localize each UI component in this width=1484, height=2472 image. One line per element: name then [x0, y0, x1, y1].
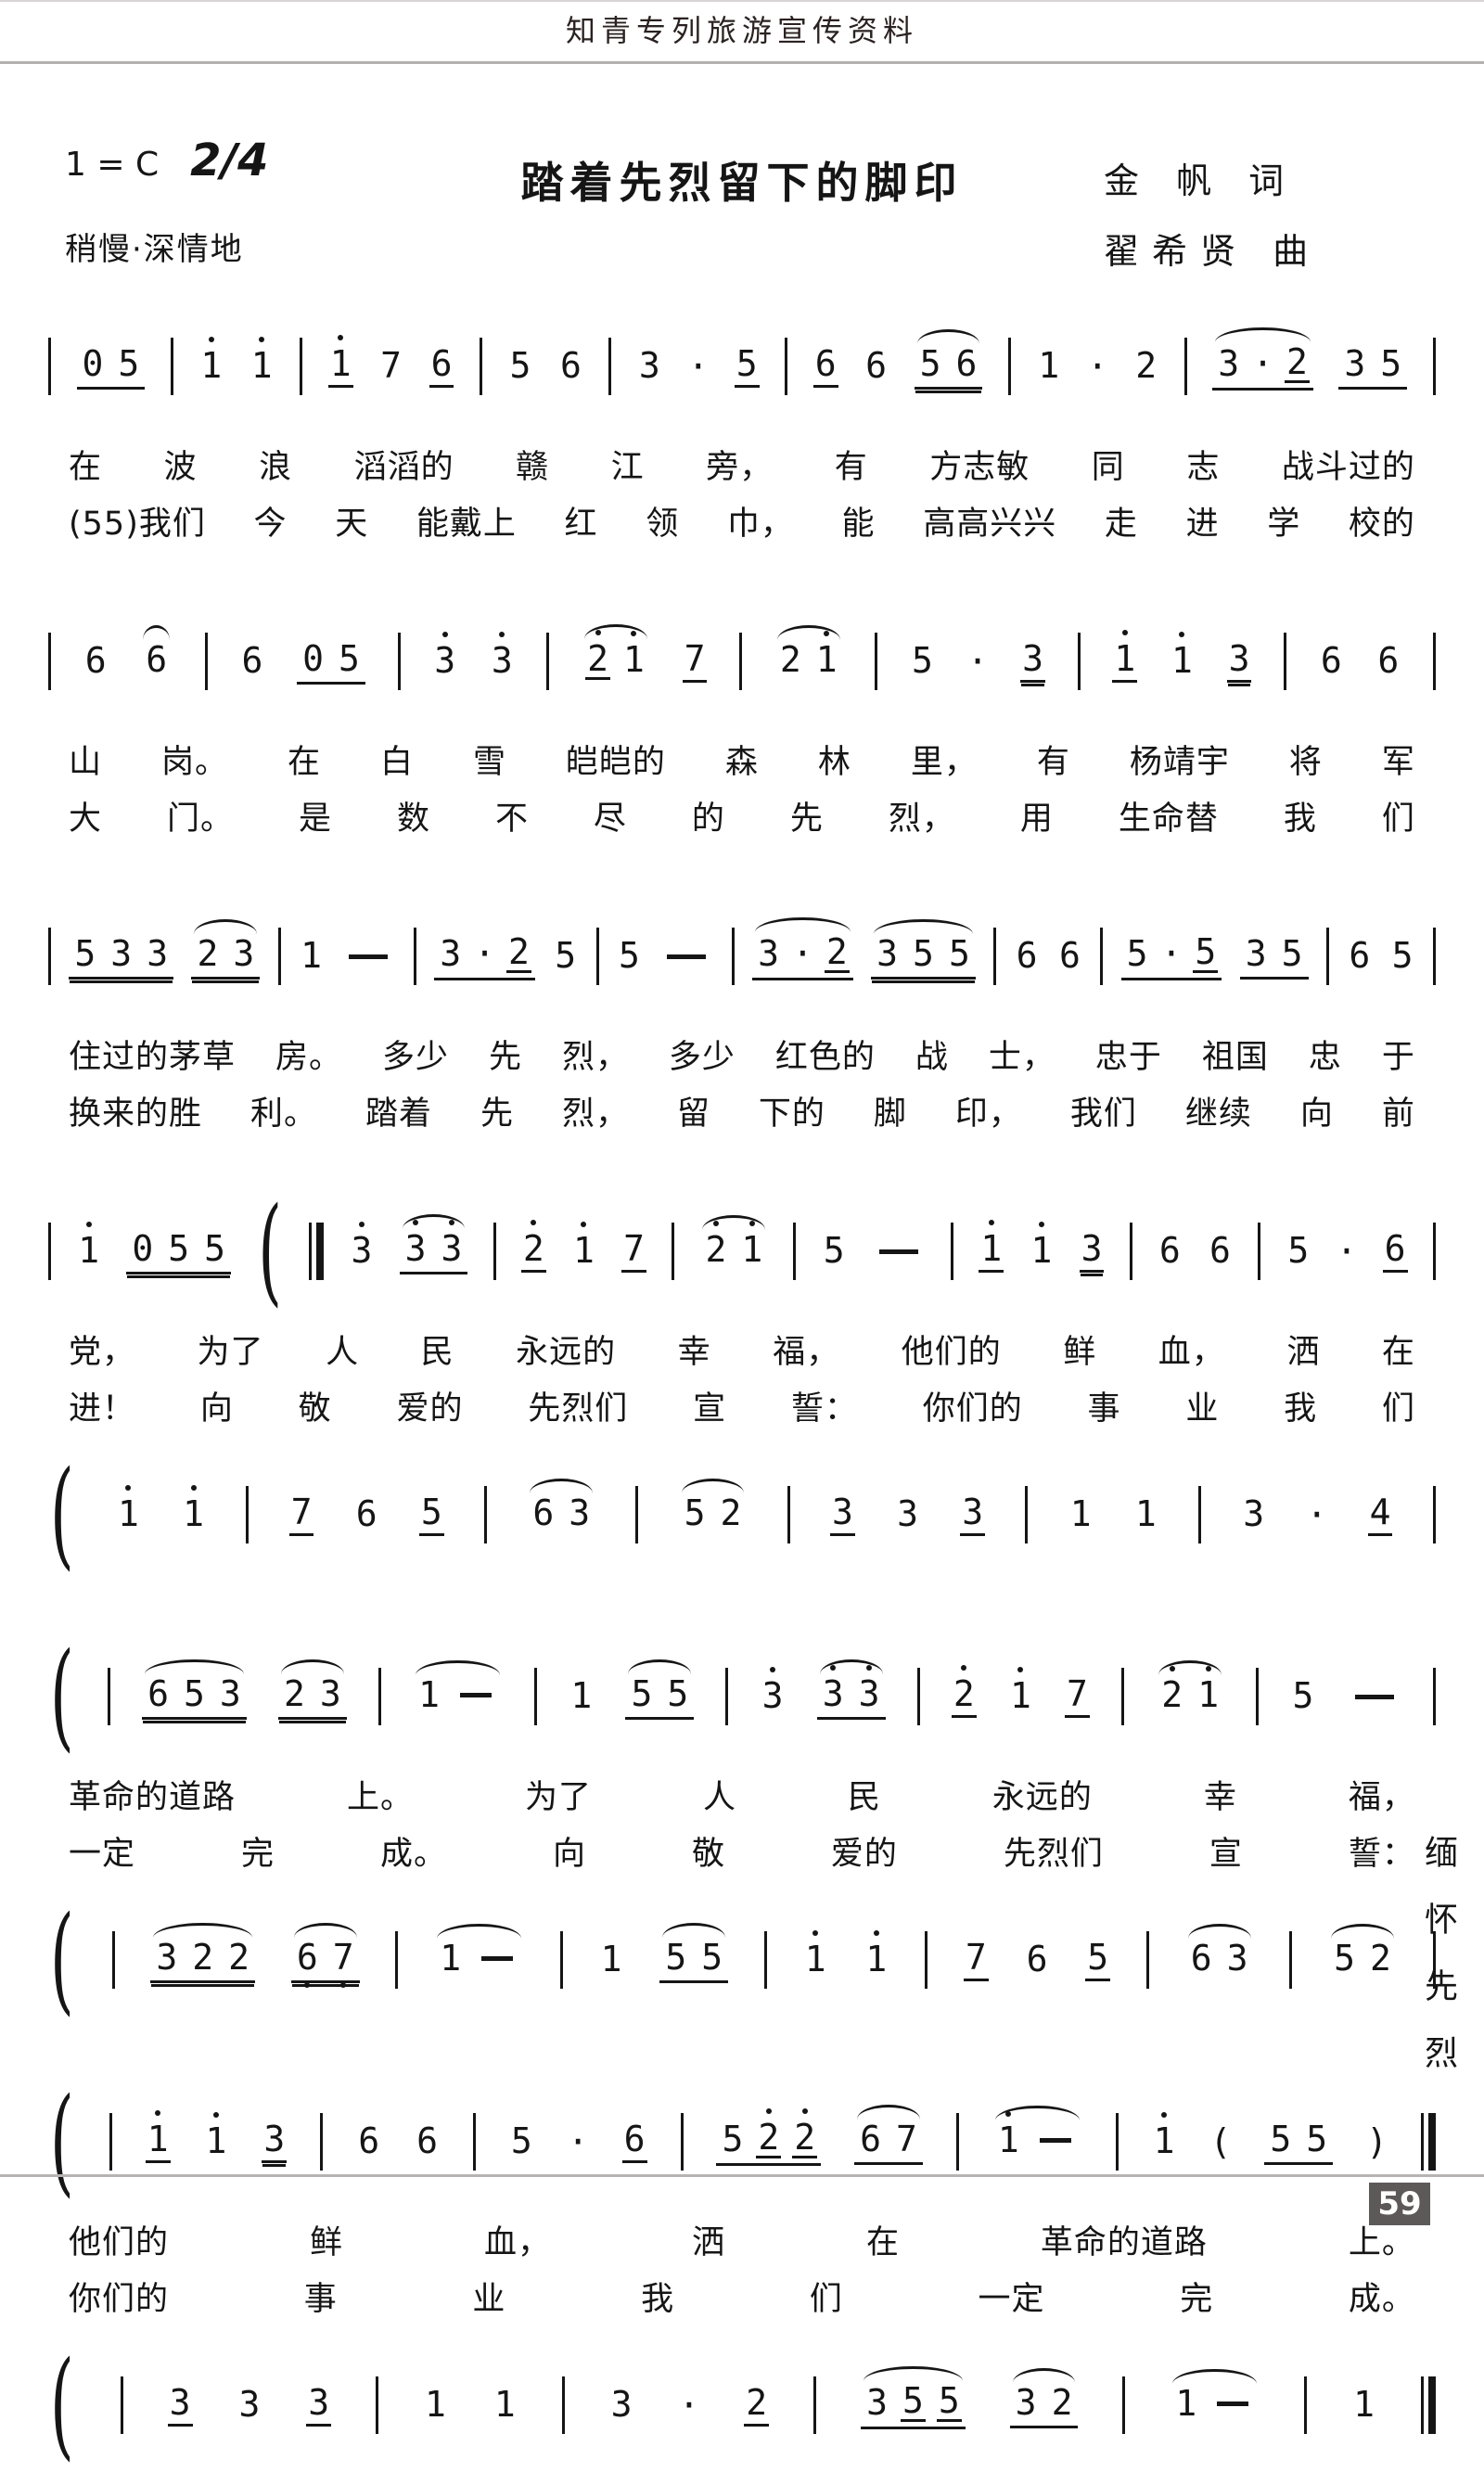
notation-row: 6660533217215·311366	[45, 591, 1439, 726]
note: 6	[1347, 937, 1372, 977]
note-group: 6	[140, 640, 173, 683]
note: 1	[328, 345, 353, 388]
note: 3	[349, 1232, 374, 1272]
note: 2	[1159, 1676, 1184, 1713]
note: 6	[1025, 1940, 1050, 1980]
notation-row: 0511176563·566561·23·235	[45, 296, 1439, 431]
lyric-word: 我	[641, 2273, 674, 2320]
note: 3	[857, 1675, 882, 1712]
lyric-word: 能戴上	[416, 497, 517, 544]
barline	[395, 1931, 398, 1989]
note: 5	[901, 2382, 926, 2422]
lyric-word: 民	[848, 1771, 881, 1818]
note: 1	[569, 1677, 594, 1717]
note: 1	[423, 2386, 448, 2426]
octave-dot-above	[86, 1222, 92, 1227]
lyric-word: 宣	[693, 1382, 726, 1429]
barline	[1289, 1931, 1292, 1989]
lyric-word: 江	[611, 441, 645, 488]
lyric-word: 幸	[1204, 1771, 1237, 1818]
note-group: 533	[69, 934, 173, 980]
note-group: 55	[659, 1938, 728, 1983]
lyric-word: 红色的	[775, 1031, 876, 1078]
barline	[534, 1668, 537, 1725]
note-group: 05	[297, 639, 365, 685]
note: 5	[937, 2382, 962, 2422]
lyric-word: 岗。	[161, 736, 228, 783]
barline	[925, 1931, 927, 1989]
notation-char: ·	[1161, 936, 1183, 971]
barline	[414, 928, 416, 985]
notation-char: ·	[1252, 346, 1273, 381]
note: 6	[1158, 1232, 1183, 1272]
lyric-word: 血，	[1158, 1326, 1225, 1373]
note-group: 33	[400, 1229, 468, 1274]
note-group: 52	[679, 1493, 748, 1536]
lyric-word: 幸	[678, 1326, 711, 1373]
lyric-word: 完	[1180, 2273, 1213, 2320]
note: 5	[1286, 1232, 1311, 1272]
lyric-word: 上。	[347, 1771, 414, 1818]
note: 1	[739, 1231, 764, 1268]
note: 1	[204, 2122, 229, 2162]
barline	[1130, 1223, 1132, 1280]
lyric-word: 森	[725, 736, 759, 783]
note: 3	[761, 1677, 786, 1717]
barline	[320, 2113, 323, 2171]
octave-dot-above	[749, 1221, 755, 1226]
lyric-word: 们	[1382, 792, 1415, 839]
note: 2	[1050, 2384, 1075, 2421]
barline	[108, 1668, 110, 1725]
voice-brace: (	[48, 1456, 76, 1572]
lyrics-row-verse2: (55)我们今天能戴上红领巾，能高高兴兴走进学校的	[45, 488, 1439, 544]
note: 6	[1208, 1232, 1233, 1272]
barline	[205, 633, 208, 690]
note: 5	[665, 1675, 690, 1712]
lyrics-row-verse1: 他们的鲜血，洒在革命的道路上。	[45, 2207, 1439, 2263]
octave-dot-above	[191, 1485, 197, 1491]
lyric-word: 尽	[594, 792, 627, 839]
note: 1	[1029, 1232, 1054, 1272]
note: 7	[331, 1939, 356, 1976]
note-group: 355	[861, 2381, 966, 2429]
dash-continuation	[349, 954, 388, 959]
notation-char: ·	[967, 644, 989, 679]
note: 3	[1244, 935, 1269, 972]
octave-dot-above	[1161, 2112, 1167, 2118]
voice-brace: (	[48, 1638, 76, 1754]
lyric-word: 福，	[773, 1326, 839, 1373]
lyric-word: 事	[1088, 1382, 1121, 1429]
barline	[1100, 928, 1103, 985]
octave-dot-above	[824, 631, 829, 636]
note: 4	[1368, 1493, 1393, 1536]
lyric-word: 志	[1186, 441, 1220, 488]
lyrics-row-verse1: 在波浪滔滔的赣江旁，有方志敏同志战斗过的	[45, 431, 1439, 488]
barline	[398, 633, 401, 690]
note: 1	[146, 2120, 171, 2163]
note: 2	[825, 933, 850, 973]
octave-dot-above	[595, 630, 601, 635]
page-header: 知青专列旅游宣传资料	[0, 0, 1484, 64]
note: 5	[1193, 933, 1218, 973]
note-group: 1	[1170, 2384, 1260, 2427]
note-group: 32	[1010, 2383, 1079, 2428]
lyrics-row-verse1: 党，为了人民永远的幸福，他们的鲜血，洒在	[45, 1316, 1439, 1373]
note: 5	[910, 642, 935, 682]
note: 7	[1065, 1675, 1090, 1718]
note-group: 21	[774, 640, 843, 683]
note: 1	[493, 2386, 518, 2426]
note: 5	[337, 640, 362, 677]
notation-char: ·	[474, 936, 495, 971]
lyric-word: 波	[164, 441, 198, 488]
lyric-word: 们	[810, 2273, 843, 2320]
lyric-word: 敬	[692, 1827, 725, 1875]
lyric-word: 你们的	[923, 1382, 1023, 1429]
lyric-word: 先	[480, 1087, 514, 1134]
lyric-word: 业	[472, 2273, 505, 2320]
lyrics-row-verse1: 住过的茅草房。多少先烈，多少红色的战士，忠于祖国忠于	[45, 1021, 1439, 1078]
note: 3	[830, 1493, 855, 1536]
note: 6	[813, 345, 838, 388]
note: 6	[858, 2120, 883, 2158]
octave-dot-above	[1005, 2111, 1011, 2117]
octave-dot-above	[961, 1665, 966, 1671]
dash-continuation	[1040, 2138, 1071, 2143]
lyric-word: 里，	[911, 736, 978, 783]
octave-dot-above	[499, 632, 505, 637]
barline	[672, 1223, 674, 1280]
note-group: 322	[150, 1938, 255, 1983]
barline	[951, 1223, 953, 1280]
octave-dot-above	[581, 1222, 586, 1227]
note: 7	[894, 2120, 919, 2158]
octave-dot-above	[531, 1220, 536, 1225]
note-group: 3·2	[752, 932, 853, 980]
note: 3	[1020, 640, 1045, 683]
lyric-word: 脚	[874, 1087, 907, 1134]
note: 3	[1014, 2384, 1039, 2421]
note: 1	[1068, 1495, 1094, 1535]
note-group: 5·5	[1121, 932, 1222, 980]
barline	[171, 338, 173, 395]
margin-note: 缅怀先烈	[1414, 1835, 1462, 2102]
lyric-word: 换来的胜	[69, 1087, 202, 1134]
lyric-word: 爱的	[831, 1827, 898, 1875]
barline	[246, 1486, 249, 1543]
lyric-word: 进！	[69, 1382, 135, 1429]
note: 2	[744, 2384, 769, 2427]
lyric-word: 血，	[484, 2216, 551, 2263]
lyric-word: 们	[1382, 1382, 1415, 1429]
lyric-word: 留	[677, 1087, 710, 1134]
barline	[1284, 633, 1286, 690]
lyric-word: 你们的	[69, 2273, 169, 2320]
lyric-word: 踏着	[365, 1087, 432, 1134]
note: 3	[237, 2386, 262, 2426]
lyric-word: 天	[335, 497, 368, 544]
barline	[1122, 2376, 1125, 2434]
note: 2	[1368, 1940, 1393, 1977]
note: 2	[792, 2119, 817, 2158]
lyric-word: 成。	[380, 1827, 447, 1875]
lyricist-credit: 金 帆 词	[1104, 146, 1419, 216]
note: 5	[617, 937, 642, 977]
note: 0	[130, 1230, 155, 1267]
lyric-word: 先	[489, 1031, 522, 1078]
octave-dot-above	[1122, 630, 1128, 635]
note: 1	[438, 1940, 463, 1977]
note: 5	[1304, 2120, 1329, 2158]
lyric-word: 成。	[1349, 2273, 1415, 2320]
page-number: 59	[1369, 2183, 1430, 2225]
barline	[473, 2113, 476, 2171]
barline	[562, 2376, 565, 2434]
note: 5	[419, 1493, 444, 1536]
lyric-word: 誓：	[1349, 1827, 1415, 1875]
note: 5	[182, 1675, 207, 1712]
barline	[875, 633, 877, 690]
lyric-word: 前	[1382, 1087, 1415, 1134]
notation-char: ·	[792, 936, 813, 971]
voice-brace: (	[256, 1193, 284, 1309]
note: 3	[109, 935, 134, 972]
note: 7	[378, 347, 403, 387]
lyric-word: 士，	[989, 1031, 1055, 1078]
barline	[813, 2376, 816, 2434]
lyric-word: 旁，	[706, 441, 773, 488]
note-group: 35	[1338, 344, 1407, 390]
lyric-word: 印，	[955, 1087, 1022, 1134]
note: 6	[415, 2122, 440, 2162]
note: 2	[585, 640, 610, 680]
lyric-word: 民	[421, 1326, 454, 1373]
note-group: 1	[434, 1939, 524, 1981]
note-group: 355	[871, 934, 976, 980]
lyrics-row-verse2: 换来的胜利。踏着先烈，留下的脚印，我们继续向前	[45, 1078, 1439, 1134]
note: 2	[952, 1675, 977, 1718]
note: 6	[1375, 642, 1401, 682]
barline	[739, 633, 742, 690]
lyric-word: 一定	[979, 2273, 1045, 2320]
barline	[764, 1931, 767, 1989]
lyric-word: 进	[1186, 497, 1220, 544]
note: 3	[262, 2120, 287, 2163]
barline	[378, 1668, 381, 1725]
lyric-word: 在	[1382, 1326, 1415, 1373]
lyric-word: 战斗过的	[1282, 441, 1415, 488]
lyric-word: 完	[241, 1827, 275, 1875]
note: 3	[440, 1230, 465, 1267]
dash-continuation	[1217, 2402, 1248, 2406]
note: 5	[720, 2120, 745, 2158]
lyric-word: 巾，	[727, 497, 794, 544]
note-group: 55	[1264, 2120, 1333, 2165]
note: 2	[719, 1494, 744, 1531]
lyric-word: 红	[565, 497, 598, 544]
barline	[48, 633, 51, 690]
note: 3	[1080, 1230, 1105, 1273]
note: 7	[621, 1230, 646, 1273]
barline	[793, 1223, 796, 1280]
note-group: 35	[1240, 934, 1309, 980]
note: 6	[240, 642, 265, 682]
music-system: 6660533217215·311366山岗。在白雪皑皑的森林里，有杨靖宇将军大…	[45, 591, 1439, 839]
note: 2	[1285, 343, 1310, 383]
lyric-word: 军	[1382, 736, 1415, 783]
dash-continuation	[1355, 1695, 1394, 1699]
lyric-word: 方志敏	[929, 441, 1030, 488]
lyrics-row-verse2: 大门。是数不尽的先烈，用生命替我们	[45, 783, 1439, 839]
note: 6	[356, 2122, 381, 2162]
note: 3	[875, 935, 900, 972]
note: 1	[979, 1230, 1004, 1273]
note: 6	[1319, 642, 1344, 682]
note: 5	[1268, 2120, 1293, 2158]
note: 7	[683, 640, 708, 683]
note: 3	[438, 935, 463, 972]
note: 3	[637, 347, 662, 387]
barline	[484, 1486, 487, 1543]
note: 3	[306, 2384, 331, 2427]
barline	[560, 1931, 563, 1989]
note: 6	[83, 642, 109, 682]
barline	[48, 1223, 51, 1280]
note: 3	[895, 1495, 920, 1535]
lyric-word: 有	[1037, 736, 1070, 783]
barline	[1256, 1668, 1259, 1725]
barline	[1433, 1223, 1436, 1280]
note: 1	[1170, 642, 1195, 682]
harmony-notation-row: (333113·23553211	[45, 2335, 1439, 2470]
lyric-word: 永远的	[992, 1771, 1093, 1818]
note: 3	[432, 642, 457, 682]
lyrics-row-verse2: 一定完成。向敬爱的先烈们宣誓：	[45, 1818, 1439, 1875]
note: 5	[1085, 1939, 1110, 1981]
key-tempo-column: 1 = C 2/4 稍慢·深情地	[65, 146, 436, 269]
barline	[993, 928, 996, 985]
note: 3	[403, 1230, 429, 1267]
music-system: 1055(333217215113665·6党，为了人民永远的幸福，他们的鲜血，…	[45, 1181, 1439, 1580]
note: 3	[1227, 640, 1252, 683]
note: 1	[416, 1676, 441, 1713]
note: 6	[953, 345, 979, 382]
notation-row: (113665·65226711(55)	[45, 2071, 1439, 2207]
lyric-word: 的	[692, 792, 725, 839]
note: 5	[508, 347, 533, 387]
note: 1	[181, 1495, 206, 1535]
notation-char: ·	[678, 2388, 699, 2423]
lyric-word: 烈，	[889, 792, 955, 839]
note: 3	[864, 2384, 889, 2421]
lyric-word: 向	[1300, 1087, 1334, 1134]
note: 2	[521, 1230, 546, 1273]
final-barline	[1421, 2113, 1436, 2171]
note: 2	[703, 1231, 728, 1268]
lyric-word: 赣	[516, 441, 549, 488]
dash-continuation	[667, 954, 706, 959]
barline	[376, 2376, 378, 2434]
lyric-word: 利。	[250, 1087, 317, 1134]
octave-dot-above	[1039, 1222, 1044, 1227]
lyric-word: 用	[1020, 792, 1054, 839]
barline	[1258, 1223, 1260, 1280]
lyric-word: 下的	[759, 1087, 825, 1134]
note: 5	[911, 935, 936, 972]
barline	[635, 1486, 638, 1543]
octave-dot-above	[1170, 1666, 1175, 1671]
note: 1	[814, 641, 839, 678]
lyric-word: 在	[69, 441, 102, 488]
notation-char: ·	[1306, 1497, 1327, 1532]
octave-dot-above	[631, 631, 636, 636]
note-group: 21	[582, 639, 650, 685]
octave-dot-above	[766, 2108, 772, 2114]
lyric-word: 宣	[1209, 1827, 1243, 1875]
harmony-notation-row: (322671155117656352	[45, 1889, 1439, 2025]
lyric-word: 烈，	[562, 1087, 629, 1134]
octave-dot-above	[213, 2112, 219, 2118]
note: 6	[1189, 1940, 1214, 1977]
note: 3	[567, 1494, 592, 1531]
notation-char: (	[1210, 2124, 1232, 2159]
lyric-word: 我	[1284, 1382, 1317, 1429]
composer-credit: 翟希贤 曲	[1104, 216, 1419, 287]
note: 5	[1378, 345, 1403, 382]
lyric-word: 洒	[1286, 1326, 1320, 1373]
lyric-word: 先	[790, 792, 824, 839]
lyric-word: (55)我们	[69, 497, 206, 544]
lyric-word: 在	[288, 736, 321, 783]
lyric-word: 领	[646, 497, 679, 544]
score: 0511176563·566561·23·235在波浪滔滔的赣江旁，有方志敏同志…	[0, 287, 1484, 2470]
barline	[1121, 1668, 1124, 1725]
note: 6	[1383, 1230, 1408, 1273]
note-group: 55	[625, 1674, 694, 1720]
note: 3	[318, 1675, 343, 1712]
note: 5	[822, 1232, 847, 1272]
note: 6	[864, 347, 889, 387]
lyric-word: 向	[200, 1382, 234, 1429]
note-group: 1	[413, 1675, 503, 1718]
lyric-word: 将	[1289, 736, 1323, 783]
lyric-word: 一定	[69, 1827, 135, 1875]
lyric-word: 他们的	[69, 2216, 169, 2263]
octave-dot-above	[359, 1222, 365, 1227]
note: 6	[1057, 937, 1082, 977]
note: 1	[1133, 1495, 1158, 1535]
music-system: (113665·65226711(55)他们的鲜血，洒在革命的道路上。你们的事业…	[45, 2071, 1439, 2470]
note: 3	[231, 935, 256, 972]
note: 1	[1008, 1677, 1033, 1717]
lyric-word: 先烈们	[1004, 1827, 1104, 1875]
octave-dot-above	[209, 337, 214, 342]
note-group: 3·2	[1212, 342, 1313, 391]
lyric-word: 永远的	[516, 1326, 616, 1373]
lyric-word: 多少	[382, 1031, 449, 1078]
barline	[1433, 928, 1436, 985]
note: 6	[531, 1494, 556, 1531]
notation-row: (653231155333217215	[45, 1626, 1439, 1761]
note: 0	[81, 345, 106, 382]
header-title: 知青专列旅游宣传资料	[566, 13, 918, 48]
note: 3	[218, 1675, 243, 1712]
note-group: 63	[1185, 1939, 1254, 1981]
note-group: 23	[191, 934, 260, 980]
barline	[48, 928, 51, 985]
